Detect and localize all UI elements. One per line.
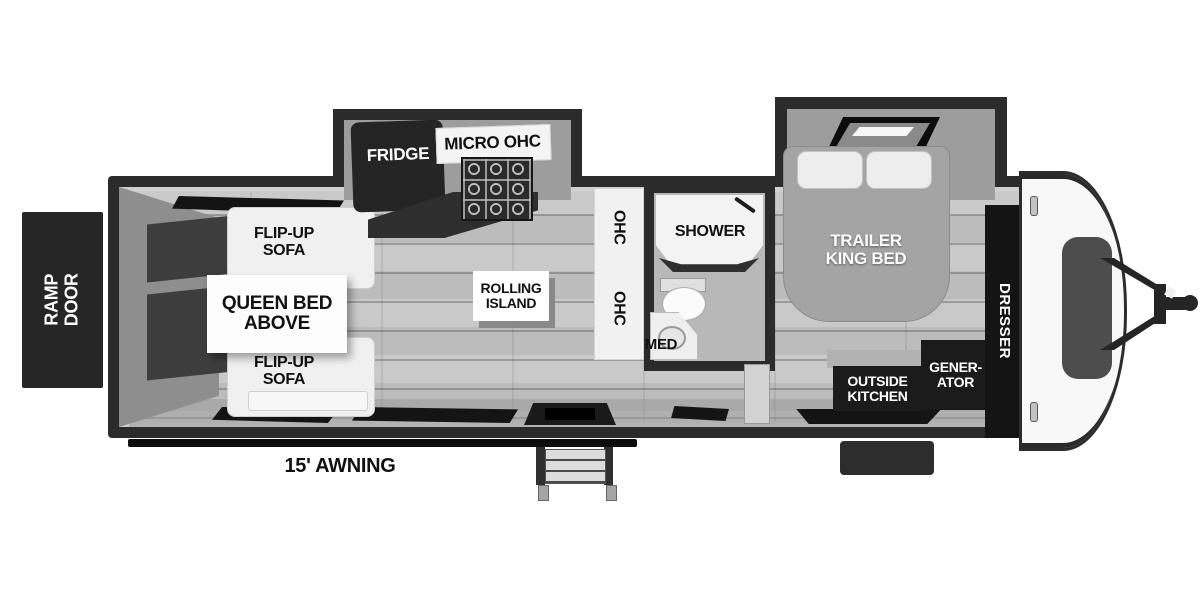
ohc-upper-label: OHC: [598, 194, 638, 260]
hitch-icon: [1100, 256, 1200, 352]
ohc-upper-text: OHC: [610, 210, 627, 245]
awning-label: 15' AWNING: [235, 451, 445, 481]
shower-label: SHOWER: [662, 221, 758, 243]
entry-steps-rail-left: [536, 441, 545, 485]
entry-steps-foot-right: [606, 485, 617, 501]
fridge-label: FRIDGE: [352, 138, 445, 171]
dresser-label-wrap: DRESSER: [985, 205, 1023, 438]
entry-steps-treads: [545, 449, 606, 484]
hallway-step: [744, 364, 770, 424]
trailer-king-bed-label: TRAILER KING BED: [793, 228, 939, 272]
pillow-left: [797, 151, 863, 189]
ohc-lower-text: OHC: [610, 291, 627, 326]
generator-slide-tray: [840, 441, 934, 475]
bedroom-skylight-glass: [852, 127, 914, 136]
entry-steps-foot-left: [538, 485, 549, 501]
ohc-lower-label: OHC: [598, 262, 638, 354]
medicine-cabinet-label: MED: [634, 334, 688, 356]
bedroom-bottom-window: [790, 409, 946, 424]
queen-bed-above-label: QUEEN BED ABOVE: [207, 275, 347, 353]
cooktop-icon: [461, 157, 533, 221]
entry-door-inner: [545, 408, 595, 420]
dresser-text: DRESSER: [996, 283, 1012, 359]
cap-latch-bottom: [1030, 402, 1038, 422]
garage-bottom-window-2: [352, 407, 518, 423]
rolling-island-label: ROLLING ISLAND: [473, 271, 549, 321]
ramp-door-interior-panel-top: [147, 215, 233, 282]
generator-label: GENER- ATOR: [921, 340, 990, 410]
awning-line: [128, 439, 637, 447]
ramp-door-label-wrap: RAMP DOOR: [22, 212, 103, 388]
ramp-door-block: RAMP DOOR: [22, 212, 103, 388]
flip-up-sofa-top-label: FLIP-UP SOFA: [231, 219, 337, 267]
flip-up-sofa-bottom-label: FLIP-UP SOFA: [231, 348, 337, 396]
floorplan-canvas: RAMP DOOR 15' AWNING FLIP-UP SOFA FLIP-U…: [0, 0, 1200, 600]
cap-latch-top: [1030, 196, 1038, 216]
pillow-right: [866, 151, 932, 189]
outside-kitchen-label: OUTSIDE KITCHEN: [833, 366, 922, 411]
ramp-door-label: RAMP DOOR: [43, 274, 83, 327]
